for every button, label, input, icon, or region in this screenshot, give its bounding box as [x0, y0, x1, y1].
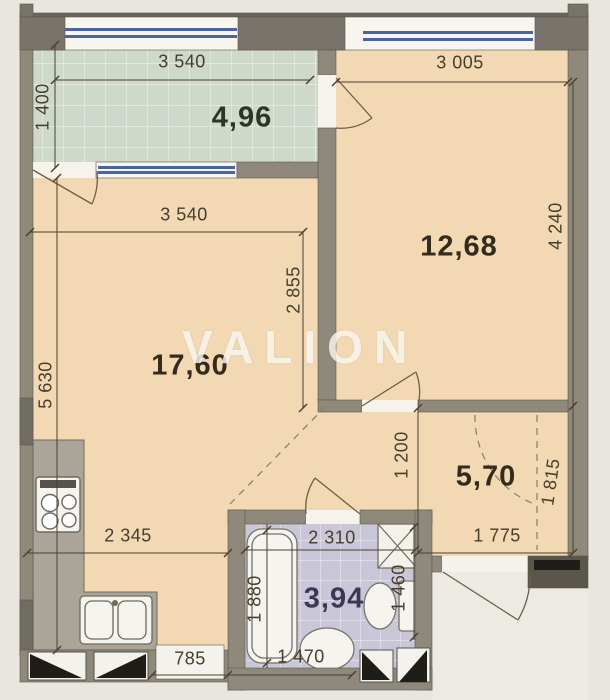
stove-icon [36, 477, 80, 532]
living-balcony-window-glass [98, 166, 235, 169]
bedroom-area-label: 12,68 [420, 231, 498, 264]
dim-living-height: 5 630 [36, 361, 57, 409]
balcony-window-glass [65, 28, 237, 31]
balcony-area-label: 4,96 [212, 102, 272, 135]
dim-hall-left-height: 1 200 [392, 431, 413, 479]
watermark: VALION [182, 320, 418, 374]
floor-plan: 3 540 1 400 3 005 4 240 3 540 5 630 2 85… [0, 0, 610, 700]
dim-bedroom-width: 3 005 [436, 53, 484, 74]
bedroom-window-glass [363, 38, 533, 41]
dim-hall-width: 1 775 [473, 526, 521, 547]
dim-sink-offset: 785 [174, 649, 206, 670]
dim-living-width: 3 540 [160, 205, 208, 226]
dim-bathroom-left-height: 1 880 [245, 575, 266, 623]
dim-bedroom-height: 4 240 [546, 202, 567, 250]
dim-bathroom-right-height: 1 460 [389, 564, 410, 612]
balcony-window-glass [65, 35, 237, 38]
dim-living-right-height: 2 855 [284, 266, 305, 314]
living-balcony-window-glass [98, 171, 235, 174]
dim-bathroom-width: 2 310 [308, 528, 356, 549]
dim-balcony-depth: 1 400 [33, 83, 54, 131]
dim-balcony-width: 3 540 [158, 52, 206, 73]
dim-bathtub-length: 1 470 [277, 647, 325, 668]
bathroom-area-label: 3,94 [304, 583, 364, 616]
kitchen-sink-icon [80, 596, 152, 644]
bedroom-window-glass [363, 31, 533, 34]
hall-area-label: 5,70 [456, 461, 516, 494]
dim-kitchen-width: 2 345 [104, 526, 152, 547]
